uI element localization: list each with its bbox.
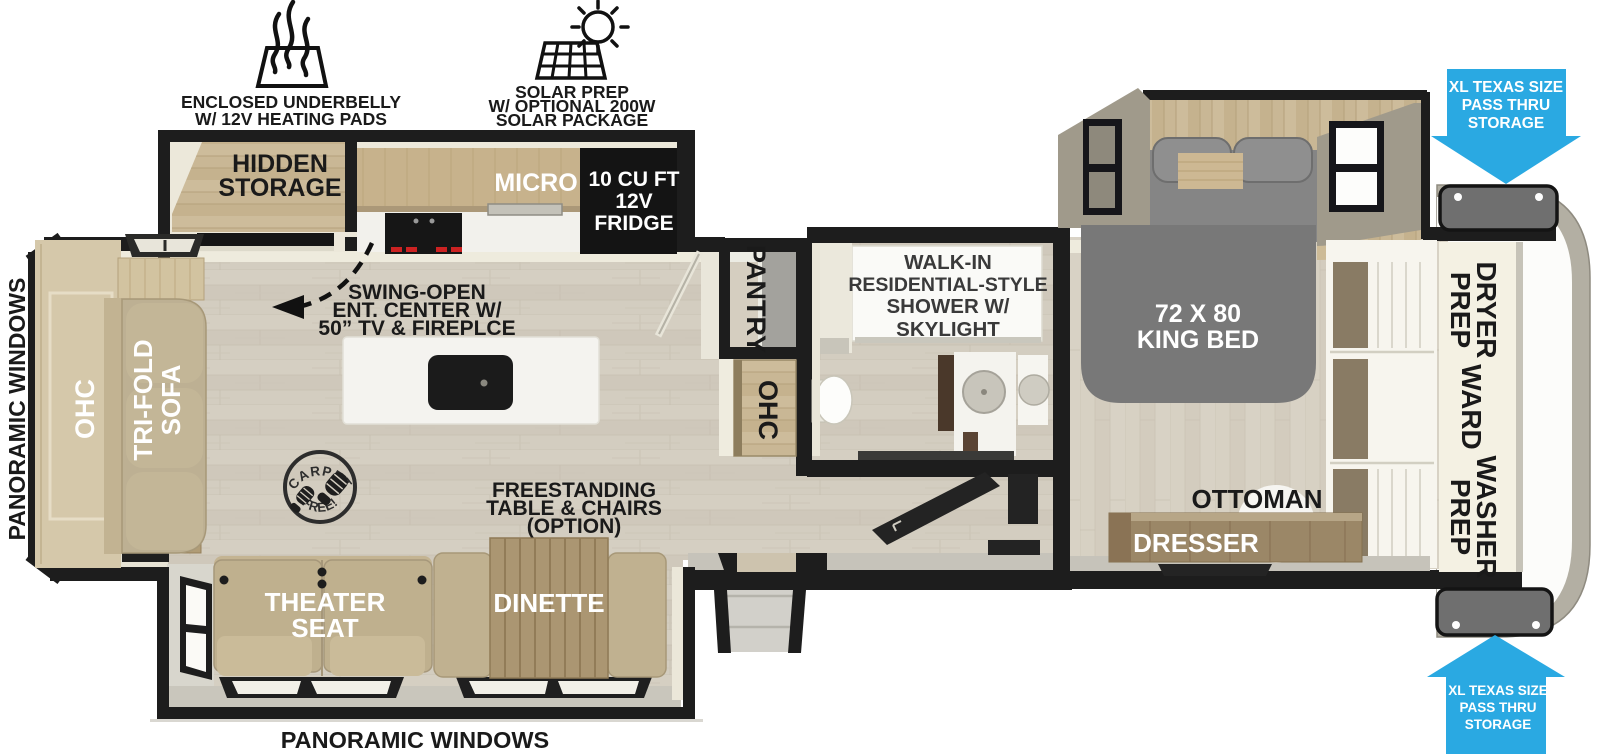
svg-text:(OPTION): (OPTION) bbox=[527, 515, 622, 538]
svg-text:WARD: WARD bbox=[1456, 364, 1487, 450]
svg-text:OTTOMAN: OTTOMAN bbox=[1192, 484, 1323, 514]
svg-text:STORAGE: STORAGE bbox=[218, 174, 341, 202]
svg-text:XL TEXAS SIZE: XL TEXAS SIZE bbox=[1449, 79, 1563, 96]
svg-text:MICRO: MICRO bbox=[494, 169, 577, 197]
svg-text:72 X 80: 72 X 80 bbox=[1155, 300, 1241, 328]
svg-text:RESIDENTIAL-STYLE: RESIDENTIAL-STYLE bbox=[848, 274, 1047, 296]
svg-text:FRIDGE: FRIDGE bbox=[594, 212, 673, 235]
svg-text:TRI-FOLD: TRI-FOLD bbox=[128, 339, 158, 460]
svg-text:PREP: PREP bbox=[1445, 479, 1476, 555]
svg-text:SKYLIGHT: SKYLIGHT bbox=[896, 318, 1000, 341]
svg-text:50” TV & FIREPLCE: 50” TV & FIREPLCE bbox=[318, 317, 515, 340]
svg-text:10 CU FT: 10 CU FT bbox=[588, 168, 679, 191]
svg-text:PREP: PREP bbox=[1445, 272, 1476, 348]
svg-text:SEAT: SEAT bbox=[291, 613, 359, 643]
svg-text:KING BED: KING BED bbox=[1137, 326, 1259, 354]
svg-text:SOLAR PACKAGE: SOLAR PACKAGE bbox=[496, 110, 648, 130]
svg-text:STORAGE: STORAGE bbox=[1468, 115, 1544, 132]
svg-text:12V: 12V bbox=[615, 190, 652, 213]
svg-text:PASS THRU: PASS THRU bbox=[1462, 97, 1550, 114]
svg-text:W/ 12V HEATING PADS: W/ 12V HEATING PADS bbox=[195, 109, 387, 129]
svg-text:PANORAMIC WINDOWS: PANORAMIC WINDOWS bbox=[281, 727, 549, 753]
svg-text:DINETTE: DINETTE bbox=[493, 588, 604, 618]
svg-text:WALK-IN: WALK-IN bbox=[904, 251, 992, 274]
svg-text:OHC: OHC bbox=[753, 380, 783, 440]
svg-text:PANORAMIC WINDOWS: PANORAMIC WINDOWS bbox=[4, 278, 30, 541]
svg-text:SHOWER W/: SHOWER W/ bbox=[887, 295, 1010, 318]
svg-text:XL TEXAS SIZE: XL TEXAS SIZE bbox=[1448, 683, 1548, 698]
svg-text:SOFA: SOFA bbox=[156, 364, 186, 435]
svg-text:PASS THRU: PASS THRU bbox=[1459, 700, 1536, 715]
svg-text:STORAGE: STORAGE bbox=[1465, 717, 1532, 732]
svg-text:DRESSER: DRESSER bbox=[1133, 528, 1259, 558]
svg-text:OHC: OHC bbox=[70, 379, 100, 439]
svg-text:PANTRY: PANTRY bbox=[741, 245, 771, 353]
